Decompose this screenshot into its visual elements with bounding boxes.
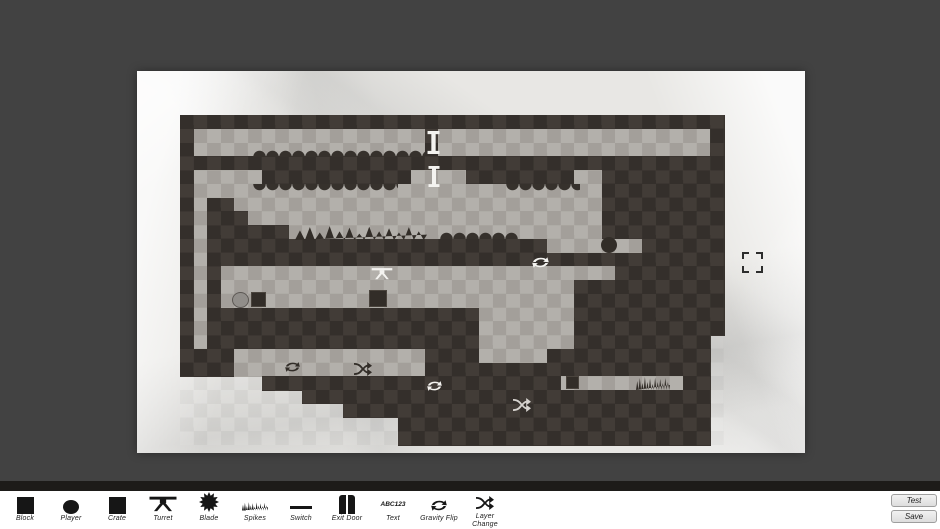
blade-ball-object[interactable]: [601, 237, 617, 253]
gravity-flip-object[interactable]: [285, 361, 300, 373]
tool-switch[interactable]: Switch: [278, 491, 324, 529]
tool-crate[interactable]: Crate: [94, 491, 140, 529]
tool-blade[interactable]: Blade: [186, 491, 232, 529]
block-icon: [17, 494, 34, 514]
player-ball-object[interactable]: [232, 292, 249, 308]
crate-icon: [109, 494, 126, 514]
toolbar-items: BlockPlayerCrateTurretBladeSpikesSwitchE…: [2, 491, 508, 529]
scallops-object[interactable]: [253, 149, 425, 157]
tool-gravity-flip[interactable]: Gravity Flip: [416, 491, 462, 529]
toolbar-buttons: Test Save: [891, 494, 937, 523]
level-editor-window: BlockPlayerCrateTurretBladeSpikesSwitchE…: [0, 0, 940, 529]
blade-icon: [199, 494, 219, 514]
tool-label: Turret: [153, 515, 172, 523]
turret-object[interactable]: [371, 266, 393, 280]
exit-door-object[interactable]: [428, 166, 440, 187]
tool-label: Gravity Flip: [420, 515, 458, 523]
scallops-object[interactable]: [506, 184, 580, 192]
tool-label: Switch: [290, 515, 312, 523]
switch-icon: [290, 494, 312, 514]
save-button[interactable]: Save: [891, 510, 937, 523]
tool-label: Layer Change: [462, 513, 508, 529]
scallops-object[interactable]: [253, 184, 398, 192]
tool-text[interactable]: ABC123Text: [370, 491, 416, 529]
tool-label: Crate: [108, 515, 126, 523]
exit-door-object[interactable]: [427, 131, 440, 154]
tool-layer-change[interactable]: Layer Change: [462, 491, 508, 529]
spikes-icon: [242, 494, 268, 514]
gravity-flip-object[interactable]: [532, 256, 549, 269]
gravity-flip-object[interactable]: [427, 380, 442, 392]
tool-label: Player: [60, 515, 81, 523]
spikes-object[interactable]: [295, 225, 427, 240]
tool-spikes[interactable]: Spikes: [232, 491, 278, 529]
crate-object[interactable]: [251, 292, 266, 307]
player-icon: [63, 494, 79, 514]
tool-player[interactable]: Player: [48, 491, 94, 529]
selection-bracket: [742, 252, 763, 273]
crate-object[interactable]: [369, 290, 387, 307]
turret-icon: [148, 494, 178, 514]
tool-label: Blade: [200, 515, 219, 523]
test-button[interactable]: Test: [891, 494, 937, 507]
layer-change-object[interactable]: [513, 398, 531, 412]
layer-change-icon: [476, 494, 494, 512]
tool-exit-door[interactable]: Exit Door: [324, 491, 370, 529]
toolbar-divider: [0, 481, 940, 491]
exit-door-icon: [339, 494, 355, 514]
scallops-object[interactable]: [440, 231, 518, 239]
tool-turret[interactable]: Turret: [140, 491, 186, 529]
tool-label: Text: [386, 515, 400, 523]
toolbar: BlockPlayerCrateTurretBladeSpikesSwitchE…: [0, 491, 940, 529]
spikes-object[interactable]: [636, 376, 670, 390]
level-objects: [0, 0, 940, 481]
crate-object[interactable]: [566, 376, 579, 389]
tool-label: Exit Door: [332, 515, 363, 523]
tool-label: Block: [16, 515, 34, 523]
text-icon: ABC123: [381, 494, 406, 514]
gravity-flip-icon: [431, 494, 447, 514]
layer-change-object[interactable]: [354, 362, 372, 376]
tool-block[interactable]: Block: [2, 491, 48, 529]
tool-label: Spikes: [244, 515, 266, 523]
